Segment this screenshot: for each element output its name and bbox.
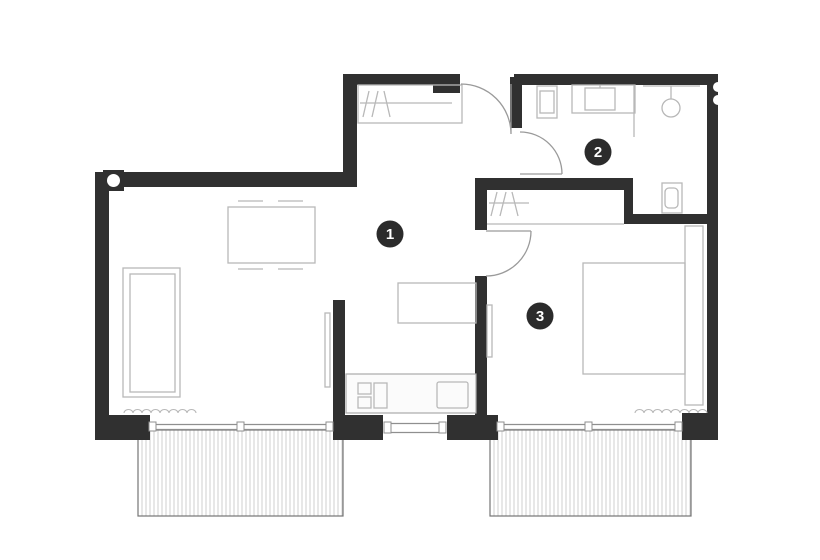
hanger-strokes-icon <box>363 91 390 117</box>
bathroom-door <box>520 132 562 174</box>
shower-head-icon <box>662 99 680 117</box>
partition-upper <box>475 178 487 230</box>
hanger-strokes-icon <box>491 192 518 216</box>
sliding-panel-living <box>325 313 330 387</box>
kitchen-island <box>398 283 476 323</box>
floor-plan-drawing: 1 2 3 <box>0 0 820 560</box>
kitchen-window <box>384 422 446 433</box>
vanity-sink <box>585 88 615 110</box>
kitchen-furniture <box>346 283 476 413</box>
closet-top-wall <box>476 178 633 190</box>
bathroom-fixtures <box>537 85 700 213</box>
toilet-bowl <box>665 188 678 208</box>
balconies <box>138 430 691 516</box>
room-1-label: 1 <box>386 226 394 243</box>
shower-rail-icon <box>643 86 700 99</box>
washing-machine-drum <box>540 91 554 113</box>
living-room-furniture <box>123 85 462 413</box>
entry-west-wall <box>343 74 357 178</box>
entry-top-wall <box>343 74 435 85</box>
headboard-panel <box>685 226 703 405</box>
curtain-icon <box>124 410 196 413</box>
bathroom-bottom-wall <box>624 214 710 224</box>
entry-door <box>461 84 511 134</box>
bottom-stub-left <box>333 415 383 440</box>
balcony-right <box>490 430 691 516</box>
room-3-label: 3 <box>536 308 544 325</box>
pipe-shaft-notch <box>713 95 723 105</box>
corner-stub-sw <box>95 415 150 440</box>
sofa <box>123 268 180 397</box>
partition-lower <box>475 276 487 416</box>
floor-plan: 1 2 3 <box>0 0 820 560</box>
hall-closet <box>487 192 624 224</box>
chairs-icon <box>238 201 303 269</box>
right-wall <box>707 74 718 414</box>
pipe-shaft-notch <box>713 82 723 92</box>
room-2-label: 2 <box>594 144 602 161</box>
bottom-stub-right <box>447 415 498 440</box>
dining-table <box>228 207 315 263</box>
top-wall-main <box>104 172 357 187</box>
bedroom-door <box>486 231 531 276</box>
room-labels: 1 2 3 <box>377 139 612 330</box>
kitchen-west-wall <box>333 300 345 417</box>
entry-door-jamb <box>433 74 460 93</box>
living-room-window <box>149 422 333 431</box>
corner-stub-se <box>682 413 718 440</box>
double-bed <box>583 263 685 374</box>
left-wall <box>95 172 109 418</box>
balcony-left <box>138 430 343 516</box>
bathroom-door-stub <box>510 77 522 128</box>
vanity <box>572 85 635 113</box>
sofa-cushion <box>130 274 175 392</box>
column-circle-icon <box>107 174 120 187</box>
bathroom-top-wall <box>514 74 710 85</box>
sliding-panel-bedroom <box>487 305 492 357</box>
bedroom-window <box>497 422 682 431</box>
curtain-icon <box>635 410 707 413</box>
bedroom-furniture <box>487 226 707 413</box>
